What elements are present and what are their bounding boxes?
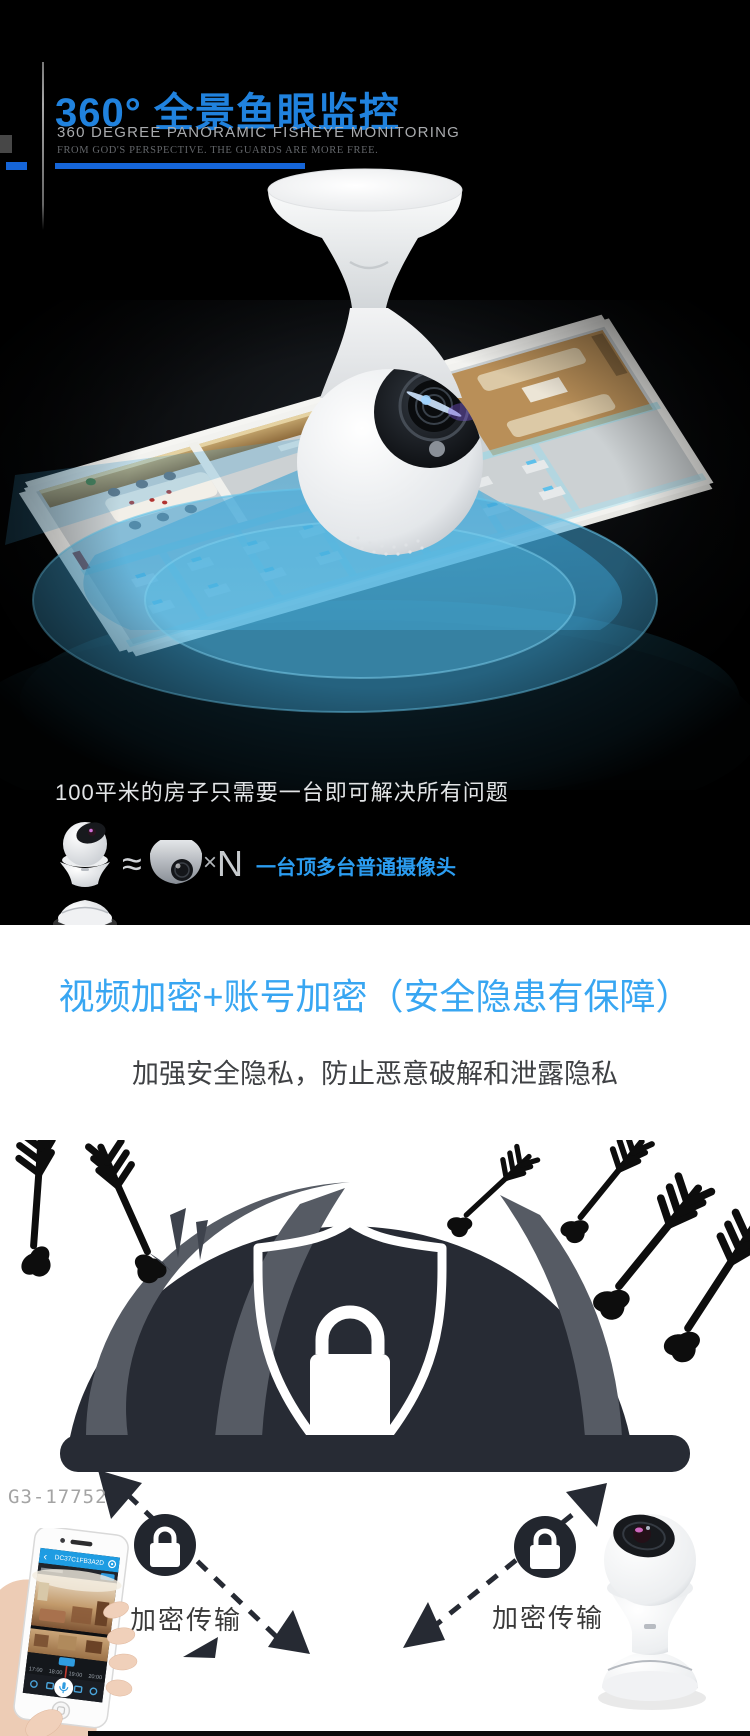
approx-symbol: ≈ bbox=[122, 843, 142, 885]
bottom-divider bbox=[88, 1731, 750, 1736]
hero-underline bbox=[55, 163, 305, 169]
phone-image: ‹ DC37C1FB3A2D bbox=[13, 1528, 130, 1729]
phone-in-hand-image: ‹ DC37C1FB3A2D bbox=[0, 1528, 165, 1736]
hero-caption: 100平米的房子只需要一台即可解决所有问题 bbox=[55, 775, 509, 807]
arrowhead-icon bbox=[183, 1637, 218, 1658]
stand-slot bbox=[644, 1624, 656, 1629]
hero-tagline: FROM GOD'S PERSPECTIVE. THE GUARDS ARE M… bbox=[57, 145, 378, 156]
edge-decoration bbox=[0, 135, 12, 153]
hand-drawn-arrow-icon bbox=[593, 1176, 711, 1320]
multiplier-n: N bbox=[217, 843, 243, 884]
security-headline: 视频加密+账号加密（安全隐患有保障） bbox=[0, 968, 750, 1020]
vertical-rule bbox=[42, 62, 44, 230]
hero-subtitle: 360 DEGREE PANORAMIC FISHEYE MONITORING bbox=[57, 124, 460, 141]
hand-drawn-arrow-icon bbox=[560, 1140, 651, 1243]
hero-camera-image bbox=[250, 150, 550, 590]
page: 360° 全景鱼眼监控 360 DEGREE PANORAMIC FISHEYE… bbox=[0, 0, 750, 1736]
hero-section: 360° 全景鱼眼监控 360 DEGREE PANORAMIC FISHEYE… bbox=[0, 0, 750, 925]
panoramic-camera-icon bbox=[50, 818, 120, 938]
times-symbol: × bbox=[203, 849, 217, 876]
compare-label: 一台顶多台普通摄像头 bbox=[256, 851, 456, 880]
dome-camera-icon bbox=[146, 840, 206, 900]
product-camera-image bbox=[572, 1502, 732, 1717]
security-subheadline: 加强安全隐私，防止恶意破解和泄露隐私 bbox=[0, 1052, 750, 1091]
blue-dash-decoration bbox=[6, 162, 27, 170]
camera-mount-top bbox=[268, 169, 462, 211]
multiplier-group: ×N bbox=[203, 843, 243, 885]
base-bar bbox=[60, 1435, 690, 1472]
model-watermark: G3-17752 bbox=[8, 1486, 108, 1508]
